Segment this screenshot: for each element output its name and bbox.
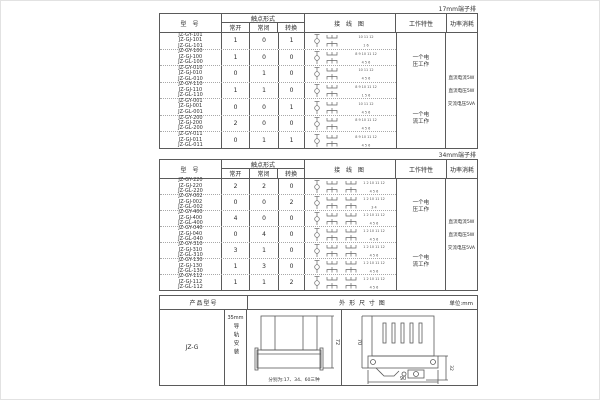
power-consumption-cell: 直流电流5W 直流电压5W 交流电压5VA — [446, 179, 477, 290]
contact-icon — [327, 44, 337, 47]
wiring-cell: 1 2 10 11 124 5 6 — [305, 211, 396, 226]
mount-text: 导轨安装 — [232, 323, 240, 357]
nc-count-cell: 0 — [250, 50, 279, 66]
svg-text:8 9 10 11 12: 8 9 10 11 12 — [355, 118, 377, 122]
coil-icon — [315, 105, 320, 110]
spec-row: JZ-GY-101JZ-GJ-101JZ-GL-10110110 11 121 … — [160, 33, 396, 50]
side-view-area: 70 90 32 — [342, 310, 477, 385]
svg-text:4 5 6: 4 5 6 — [370, 222, 379, 226]
dimension-side-height: 70 — [356, 339, 362, 345]
contact-icon — [327, 254, 337, 257]
contact-icon — [327, 270, 337, 273]
coil-icon — [315, 217, 320, 222]
wiring-cell: 8 9 10 11 124 5 6 — [305, 116, 396, 132]
wiring-diagram: 1 2 10 11 123 4 — [308, 195, 393, 210]
model-cell: JZ-GY-011JZ-GJ-011JZ-GL-011 — [160, 132, 222, 148]
svg-text:10 11 12: 10 11 12 — [358, 68, 373, 72]
coil-icon — [315, 89, 320, 94]
wiring-cell: 8 9 10 11 124 5 6 — [305, 50, 396, 66]
svg-text:1 2 10 11 12: 1 2 10 11 12 — [363, 261, 385, 265]
front-view-caption: 分别为:17、34、60三种 — [247, 377, 341, 383]
contact-icon — [327, 135, 337, 138]
model-cell: JZ-GY-040JZ-GJ-040JZ-GL-040 — [160, 227, 222, 242]
wiring-diagram: 1 2 10 11 124 5 6 — [308, 243, 393, 258]
coil-icon — [315, 249, 320, 254]
contact-icon — [327, 35, 337, 38]
spec-rows: JZ-GY-220JZ-GJ-220JZ-GL-2202201 2 10 11 … — [160, 179, 396, 290]
no-count-cell: 4 — [222, 211, 250, 226]
product-model-cell: JZ-G — [160, 310, 225, 385]
svg-text:4 5 6: 4 5 6 — [370, 286, 379, 290]
coil-icon — [315, 233, 320, 238]
wiring-diagram: 8 9 10 11 124 5 6 — [308, 50, 393, 65]
svg-text:8 9 10 11 12: 8 9 10 11 12 — [355, 85, 377, 89]
coil-icon — [315, 201, 320, 206]
contact-icon — [327, 85, 337, 88]
side-view-drawing: 70 90 32 — [342, 310, 477, 387]
contact-icon — [327, 190, 337, 193]
model-cell: JZ-GY-310JZ-GJ-310JZ-GL-310 — [160, 243, 222, 258]
svg-text:4 5 6: 4 5 6 — [370, 270, 379, 274]
contact-icon — [327, 245, 337, 248]
terminal-strip-17mm-label: 17mm端子排 — [439, 4, 476, 13]
coil-icon — [315, 138, 320, 143]
no-count-cell: 1 — [222, 275, 250, 290]
contact-icon — [327, 143, 337, 146]
column-header-normally-open: 常开 — [222, 169, 250, 178]
wiring-cell: 1 2 10 11 124 5 6 — [305, 179, 396, 194]
no-count-cell: 1 — [222, 83, 250, 99]
column-header-normally-closed: 常闭 — [250, 169, 279, 178]
work-characteristic-current: 一个电流工作 — [412, 112, 430, 126]
dimension-header: 外 形 尺 寸 图 单位:mm — [248, 296, 477, 309]
contact-icon — [346, 229, 356, 232]
nc-count-cell: 0 — [250, 195, 279, 210]
no-count-cell: 2 — [222, 116, 250, 132]
svg-text:10 11 12: 10 11 12 — [358, 35, 373, 39]
wiring-cell: 10 11 124 5 6 — [305, 66, 396, 82]
contact-icon — [346, 197, 356, 200]
contact-icon — [346, 261, 356, 264]
svg-text:4 5 6: 4 5 6 — [370, 238, 379, 242]
contact-icon — [346, 222, 356, 225]
spec-row: JZ-GY-110JZ-GJ-110JZ-GL-1101108 9 10 11 … — [160, 83, 396, 100]
power-line-dc-voltage: 直流电压5W — [448, 232, 474, 238]
work-characteristic-cell: 一个电压工作 一个电流工作 — [396, 179, 446, 290]
svg-text:4 5 6: 4 5 6 — [362, 143, 371, 147]
contact-icon — [327, 229, 337, 232]
no-count-cell: 0 — [222, 195, 250, 210]
contact-icon — [327, 94, 337, 97]
svg-text:1 5 6: 1 5 6 — [362, 94, 371, 98]
nc-count-cell: 0 — [250, 116, 279, 132]
model-cell: JZ-GY-400JZ-GJ-400JZ-GL-400 — [160, 211, 222, 226]
wiring-diagram: 1 2 10 11 124 5 6 — [308, 227, 393, 242]
no-count-cell: 1 — [222, 33, 250, 49]
wiring-cell: 1 2 10 11 123 4 — [305, 195, 396, 210]
co-count-cell: 0 — [279, 243, 305, 258]
coil-icon — [315, 185, 320, 190]
power-line-ac-voltage: 交流电压5VA — [448, 245, 475, 251]
column-header-contact-form: 触点形式 常开 常闭 转换 — [222, 160, 305, 178]
spec-table-34mm: 型 号 触点形式 常开 常闭 转换 接 线 图 工作特性 功率消耗 JZ-GY-… — [159, 159, 478, 291]
outline-dimension-table: 产品型号 外 形 尺 寸 图 单位:mm JZ-G 35mm 导轨安装 — [159, 295, 478, 386]
model-cell: JZ-GY-010JZ-GJ-010JZ-GL-010 — [160, 66, 222, 82]
co-count-cell: 2 — [279, 195, 305, 210]
svg-text:3 4: 3 4 — [371, 206, 376, 210]
contact-icon — [327, 52, 337, 55]
spec-table-header: 型 号 触点形式 常开 常闭 转换 接 线 图 工作特性 功率消耗 — [160, 160, 477, 179]
contact-icon — [327, 110, 337, 113]
contact-form-title: 触点形式 — [222, 160, 304, 169]
power-line-dc-voltage: 直流电压5W — [448, 88, 474, 94]
svg-text:1 2 10 11 12: 1 2 10 11 12 — [363, 245, 385, 249]
column-header-model: 型 号 — [160, 160, 222, 178]
svg-text:8 9 10 11 12: 8 9 10 11 12 — [355, 52, 377, 56]
datasheet-page: 17mm端子排 型 号 触点形式 常开 常闭 转换 接 线 图 工作特性 功率消… — [0, 0, 600, 400]
co-count-cell: 0 — [279, 116, 305, 132]
front-view-area: 72 分别为:17、34、60三种 — [247, 310, 342, 385]
contact-icon — [327, 277, 337, 280]
power-line-dc-current: 直流电流5W — [448, 219, 474, 225]
contact-icon — [346, 277, 356, 280]
terminal-strip-34mm-label: 34mm端子排 — [439, 150, 476, 159]
nc-count-cell: 1 — [250, 83, 279, 99]
svg-text:1 2 10 11 12: 1 2 10 11 12 — [363, 213, 385, 217]
contact-icon — [327, 77, 337, 80]
coil-icon — [315, 122, 320, 127]
column-header-contact-form: 触点形式 常开 常闭 转换 — [222, 14, 305, 32]
model-cell: JZ-GY-002JZ-GJ-002JZ-GL-002 — [160, 195, 222, 210]
svg-text:4 5 6: 4 5 6 — [362, 77, 371, 81]
column-header-work-characteristic: 工作特性 — [396, 14, 447, 32]
unit-label: 单位:mm — [449, 299, 473, 307]
spec-row: JZ-GY-010JZ-GJ-010JZ-GL-01001010 11 124 … — [160, 66, 396, 83]
spec-table-header: 型 号 触点形式 常开 常闭 转换 接 线 图 工作特性 功率消耗 — [160, 14, 477, 33]
model-cell: JZ-GY-130JZ-GJ-130JZ-GL-130 — [160, 259, 222, 274]
wiring-cell: 1 2 10 11 124 5 6 — [305, 259, 396, 274]
svg-text:4 5 6: 4 5 6 — [370, 254, 379, 258]
dimension-front-height: 72 — [334, 339, 340, 345]
svg-text:8 9 10 11 12: 8 9 10 11 12 — [355, 135, 377, 139]
no-count-cell: 2 — [222, 179, 250, 194]
svg-text:4 5 6: 4 5 6 — [370, 190, 379, 194]
model-cell: JZ-GY-200JZ-GJ-200JZ-GL-200 — [160, 116, 222, 132]
svg-text:1 2 10 11 12: 1 2 10 11 12 — [363, 277, 385, 281]
wiring-diagram: 10 11 124 5 6 — [308, 66, 393, 81]
svg-text:4 5 6: 4 5 6 — [362, 110, 371, 114]
no-count-cell: 3 — [222, 243, 250, 258]
contact-icon — [346, 181, 356, 184]
coil-icon — [315, 281, 320, 286]
wiring-cell: 10 11 124 5 6 — [305, 99, 396, 115]
wiring-diagram: 1 2 10 11 124 5 6 — [308, 211, 393, 226]
contact-icon — [327, 127, 337, 130]
contact-icon — [327, 68, 337, 71]
model-number: JZ-GL-011 — [178, 143, 203, 148]
nc-count-cell: 1 — [250, 66, 279, 82]
contact-icon — [346, 254, 356, 257]
contact-icon — [327, 206, 337, 209]
svg-text:1 6: 1 6 — [363, 44, 368, 48]
contact-icon — [327, 60, 337, 63]
wiring-cell: 10 11 121 6 — [305, 33, 396, 49]
wiring-cell: 8 9 10 11 124 5 6 — [305, 132, 396, 148]
spec-row: JZ-GY-112JZ-GJ-112JZ-GL-1121121 2 10 11 … — [160, 275, 396, 290]
wiring-cell: 1 2 10 11 124 5 6 — [305, 243, 396, 258]
contact-icon — [327, 286, 337, 289]
co-count-cell: 0 — [279, 179, 305, 194]
co-count-cell: 1 — [279, 33, 305, 49]
wiring-diagram: 8 9 10 11 121 5 6 — [308, 83, 393, 98]
svg-text:4 5 6: 4 5 6 — [362, 60, 371, 64]
mount-cell: 35mm 导轨安装 — [225, 310, 247, 385]
svg-text:10 11 12: 10 11 12 — [358, 102, 373, 106]
nc-count-cell: 0 — [250, 211, 279, 226]
no-count-cell: 1 — [222, 50, 250, 66]
co-count-cell: 1 — [279, 132, 305, 148]
contact-form-title: 触点形式 — [222, 14, 304, 23]
front-view-drawing: 72 — [247, 310, 340, 372]
nc-count-cell: 2 — [250, 179, 279, 194]
svg-text:1 2 10 11 12: 1 2 10 11 12 — [363, 229, 385, 233]
wiring-diagram: 1 2 10 11 124 5 6 — [308, 179, 393, 194]
nc-count-cell: 1 — [250, 275, 279, 290]
svg-text:1 2 10 11 12: 1 2 10 11 12 — [363, 181, 385, 185]
contact-icon — [327, 118, 337, 121]
contact-icon — [327, 261, 337, 264]
contact-icon — [327, 197, 337, 200]
nc-count-cell: 0 — [250, 33, 279, 49]
svg-text:1 2 10 11 12: 1 2 10 11 12 — [363, 197, 385, 201]
contact-icon — [346, 245, 356, 248]
column-header-normally-closed: 常闭 — [250, 23, 279, 32]
contact-icon — [346, 238, 356, 241]
column-header-power-consumption: 功率消耗 — [447, 14, 477, 32]
co-count-cell: 0 — [279, 227, 305, 242]
spec-table-17mm: 型 号 触点形式 常开 常闭 转换 接 线 图 工作特性 功率消耗 JZ-GY-… — [159, 13, 478, 149]
contact-icon — [327, 238, 337, 241]
contact-icon — [327, 102, 337, 105]
co-count-cell: 0 — [279, 259, 305, 274]
power-line-ac-voltage: 交流电压5VA — [448, 101, 475, 107]
nc-count-cell: 3 — [250, 259, 279, 274]
work-characteristic-cell: 一个电压工作 一个电流工作 — [396, 33, 446, 148]
power-consumption-cell: 直流电流5W 直流电压5W 交流电压5VA — [446, 33, 477, 148]
column-header-wiring-diagram: 接 线 图 — [305, 14, 396, 32]
spec-row: JZ-GY-001JZ-GJ-001JZ-GL-00100110 11 124 … — [160, 99, 396, 116]
model-cell: JZ-GY-220JZ-GJ-220JZ-GL-220 — [160, 179, 222, 194]
coil-icon — [315, 265, 320, 270]
contact-icon — [346, 206, 356, 209]
spec-row: JZ-GY-011JZ-GJ-011JZ-GL-0110118 9 10 11 … — [160, 132, 396, 148]
column-header-model: 型 号 — [160, 14, 222, 32]
wiring-cell: 8 9 10 11 121 5 6 — [305, 83, 396, 99]
column-header-normally-open: 常开 — [222, 23, 250, 32]
wiring-diagram: 1 2 10 11 124 5 6 — [308, 275, 393, 290]
wiring-diagram: 8 9 10 11 124 5 6 — [308, 133, 393, 148]
no-count-cell: 0 — [222, 66, 250, 82]
co-count-cell: 1 — [279, 99, 305, 115]
no-count-cell: 0 — [222, 99, 250, 115]
model-cell: JZ-GY-100JZ-GJ-100JZ-GL-100 — [160, 50, 222, 66]
wiring-cell: 1 2 10 11 124 5 6 — [305, 227, 396, 242]
work-characteristic-voltage: 一个电压工作 — [412, 55, 430, 69]
svg-text:4 5 6: 4 5 6 — [362, 127, 371, 131]
coil-icon — [315, 39, 320, 44]
coil-icon — [315, 56, 320, 61]
nc-count-cell: 4 — [250, 227, 279, 242]
co-count-cell: 0 — [279, 211, 305, 226]
contact-icon — [327, 213, 337, 216]
wiring-diagram: 10 11 124 5 6 — [308, 100, 393, 115]
coil-icon — [315, 72, 320, 77]
spec-row: JZ-GY-200JZ-GJ-200JZ-GL-2002008 9 10 11 … — [160, 116, 396, 133]
co-count-cell: 0 — [279, 50, 305, 66]
co-count-cell: 0 — [279, 83, 305, 99]
work-characteristic-current: 一个电流工作 — [412, 255, 430, 269]
model-cell: JZ-GY-110JZ-GJ-110JZ-GL-110 — [160, 83, 222, 99]
spec-rows: JZ-GY-101JZ-GJ-101JZ-GL-10110110 11 121 … — [160, 33, 396, 148]
outline-header: 产品型号 外 形 尺 寸 图 单位:mm — [160, 296, 477, 310]
column-header-changeover: 转换 — [278, 23, 304, 32]
wiring-cell: 1 2 10 11 124 5 6 — [305, 275, 396, 290]
contact-icon — [346, 213, 356, 216]
wiring-diagram: 8 9 10 11 124 5 6 — [308, 116, 393, 131]
column-header-work-characteristic: 工作特性 — [396, 160, 447, 178]
contact-icon — [327, 181, 337, 184]
dimension-side-depth: 32 — [448, 365, 454, 371]
dimension-header-label: 外 形 尺 寸 图 — [339, 298, 386, 307]
no-count-cell: 1 — [222, 259, 250, 274]
wiring-diagram: 1 2 10 11 124 5 6 — [308, 259, 393, 274]
model-cell: JZ-GY-101JZ-GJ-101JZ-GL-101 — [160, 33, 222, 49]
spec-row: JZ-GY-100JZ-GJ-100JZ-GL-1001008 9 10 11 … — [160, 50, 396, 67]
product-model-header: 产品型号 — [160, 296, 248, 309]
no-count-cell: 0 — [222, 132, 250, 148]
column-header-power-consumption: 功率消耗 — [447, 160, 477, 178]
power-line-dc-current: 直流电流5W — [448, 75, 474, 81]
nc-count-cell: 1 — [250, 243, 279, 258]
co-count-cell: 2 — [279, 275, 305, 290]
nc-count-cell: 1 — [250, 132, 279, 148]
model-cell: JZ-GY-001JZ-GJ-001JZ-GL-001 — [160, 99, 222, 115]
mount-size: 35mm — [227, 315, 243, 321]
no-count-cell: 0 — [222, 227, 250, 242]
co-count-cell: 0 — [279, 66, 305, 82]
contact-icon — [346, 190, 356, 193]
contact-icon — [346, 286, 356, 289]
contact-icon — [327, 222, 337, 225]
work-characteristic-voltage: 一个电压工作 — [412, 200, 430, 214]
model-number: JZ-GL-112 — [178, 285, 203, 290]
column-header-changeover: 转换 — [278, 169, 304, 178]
column-header-wiring-diagram: 接 线 图 — [305, 160, 396, 178]
nc-count-cell: 0 — [250, 99, 279, 115]
contact-icon — [346, 270, 356, 273]
model-cell: JZ-GY-112JZ-GJ-112JZ-GL-112 — [160, 275, 222, 290]
dimension-side-width: 90 — [400, 376, 406, 382]
wiring-diagram: 10 11 121 6 — [308, 33, 393, 48]
